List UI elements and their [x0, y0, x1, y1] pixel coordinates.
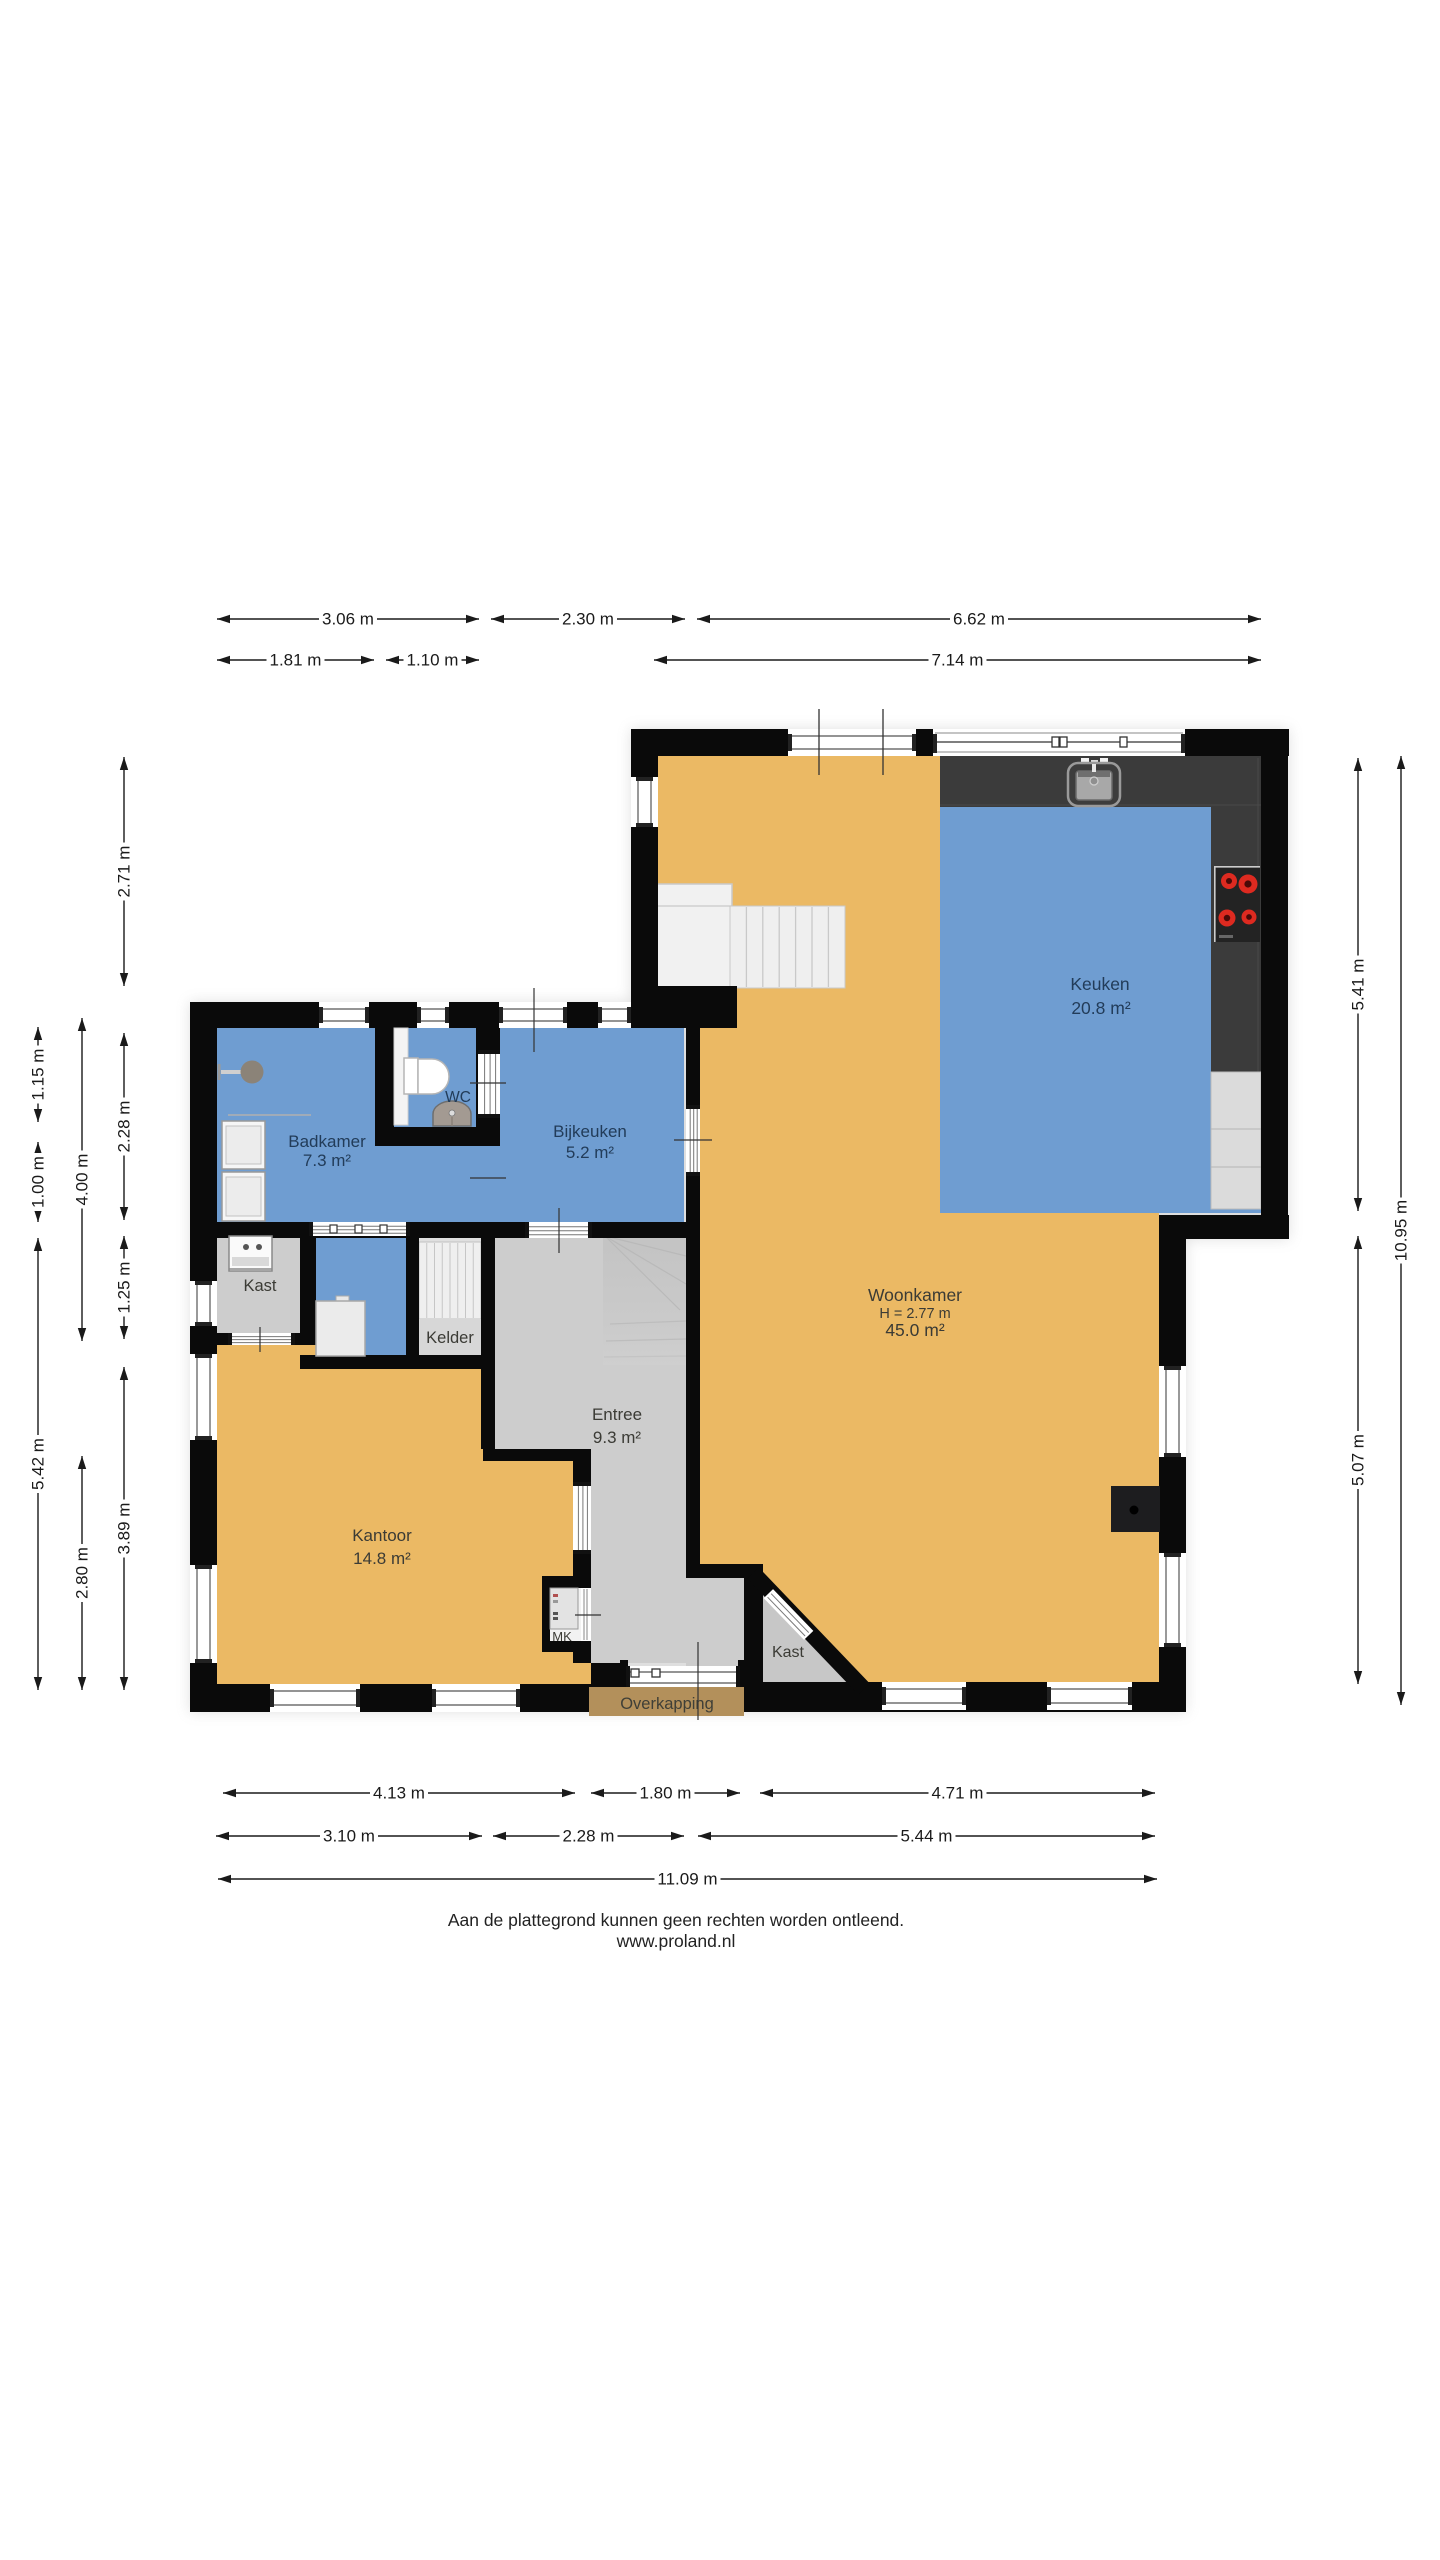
svg-text:14.8 m²: 14.8 m² — [353, 1549, 411, 1568]
svg-text:4.00 m: 4.00 m — [73, 1154, 92, 1206]
svg-text:1.10 m: 1.10 m — [407, 651, 459, 670]
svg-text:Entree: Entree — [592, 1405, 642, 1424]
svg-text:11.09 m: 11.09 m — [657, 1870, 717, 1889]
svg-text:2.28 m: 2.28 m — [115, 1101, 134, 1153]
svg-text:1.00 m: 1.00 m — [29, 1156, 48, 1208]
svg-text:10.95 m: 10.95 m — [1392, 1200, 1411, 1261]
svg-text:5.44 m: 5.44 m — [901, 1827, 953, 1846]
svg-text:6.62 m: 6.62 m — [953, 610, 1005, 629]
svg-text:5.2 m²: 5.2 m² — [566, 1143, 615, 1162]
svg-text:1.80 m: 1.80 m — [640, 1784, 692, 1803]
svg-text:5.07 m: 5.07 m — [1349, 1434, 1368, 1486]
svg-text:WC: WC — [445, 1089, 471, 1106]
svg-text:5.42 m: 5.42 m — [29, 1438, 48, 1490]
svg-text:Kast: Kast — [243, 1277, 276, 1295]
svg-text:2.28 m: 2.28 m — [563, 1827, 615, 1846]
svg-text:www.proland.nl: www.proland.nl — [616, 1931, 736, 1951]
svg-text:3.10 m: 3.10 m — [323, 1827, 375, 1846]
svg-text:45.0 m²: 45.0 m² — [885, 1320, 944, 1340]
svg-text:9.3 m²: 9.3 m² — [593, 1428, 642, 1447]
svg-text:Woonkamer: Woonkamer — [868, 1285, 962, 1305]
svg-text:7.14 m: 7.14 m — [932, 651, 984, 670]
svg-text:Overkapping: Overkapping — [620, 1695, 714, 1713]
svg-text:2.30 m: 2.30 m — [562, 610, 614, 629]
svg-text:Aan de plattegrond kunnen geen: Aan de plattegrond kunnen geen rechten w… — [448, 1910, 904, 1930]
svg-text:5.41 m: 5.41 m — [1349, 959, 1368, 1011]
svg-text:Kast: Kast — [772, 1644, 805, 1661]
svg-text:2.71 m: 2.71 m — [115, 846, 134, 898]
svg-text:2.80 m: 2.80 m — [73, 1547, 92, 1599]
svg-text:Kelder: Kelder — [426, 1329, 474, 1347]
svg-text:Badkamer: Badkamer — [288, 1132, 366, 1151]
svg-text:Bijkeuken: Bijkeuken — [553, 1122, 627, 1141]
svg-text:1.15 m: 1.15 m — [29, 1049, 48, 1101]
svg-text:7.3 m²: 7.3 m² — [303, 1151, 352, 1170]
svg-text:4.71 m: 4.71 m — [932, 1784, 984, 1803]
svg-text:Kantoor: Kantoor — [352, 1526, 412, 1545]
svg-text:4.13 m: 4.13 m — [373, 1784, 425, 1803]
svg-text:3.89 m: 3.89 m — [115, 1503, 134, 1555]
svg-text:20.8 m²: 20.8 m² — [1071, 998, 1130, 1018]
svg-text:3.06 m: 3.06 m — [322, 610, 374, 629]
svg-text:Keuken: Keuken — [1070, 974, 1129, 994]
svg-text:MK: MK — [552, 1629, 572, 1644]
svg-text:1.81 m: 1.81 m — [270, 651, 322, 670]
svg-text:1.25 m: 1.25 m — [115, 1262, 134, 1314]
